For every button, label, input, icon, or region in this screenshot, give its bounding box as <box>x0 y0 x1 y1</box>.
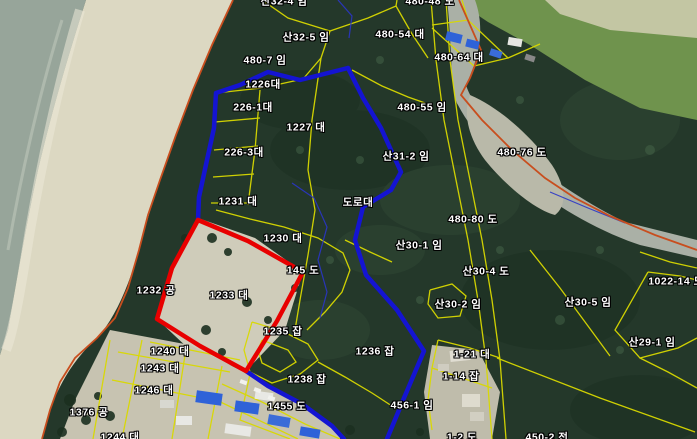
map-viewport[interactable]: 산32-4 임480-48 도산32-5 임480-54 대480-64 대48… <box>0 0 697 439</box>
aerial-basemap <box>0 0 697 439</box>
